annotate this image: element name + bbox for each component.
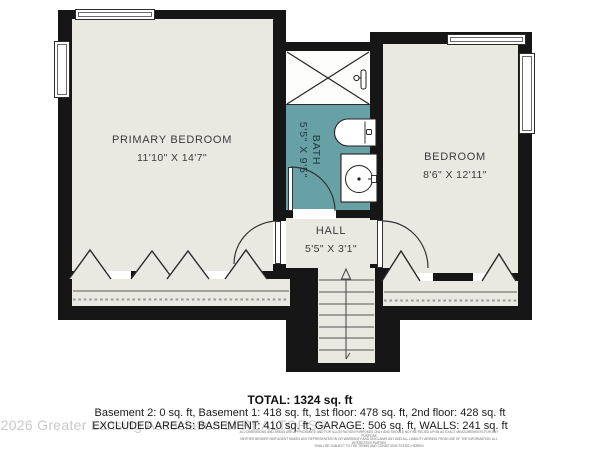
staircase: [318, 268, 375, 363]
knee-wall-segment: [72, 271, 79, 279]
bedroom-dimensions: 8'6" X 12'11": [423, 169, 487, 181]
eaves-strip-left: [72, 279, 290, 306]
knee-wall-segment: [510, 273, 518, 281]
primary-bedroom-dimensions: 11'10" X 14'7": [137, 152, 207, 164]
shower-stall: [286, 51, 370, 105]
floor-areas-text: Basement 2: 0 sq. ft, Basement 1: 418 sq…: [0, 407, 600, 420]
window-primary-left: [54, 41, 70, 98]
knee-wall-segment: [383, 273, 391, 281]
total-area-text: TOTAL: 1324 sq. ft: [0, 393, 600, 407]
bedroom-label: BEDROOM: [424, 151, 486, 163]
disclaimer-line: SHALL BE SUBJECT TO THE TERMS AND CONDIT…: [238, 445, 500, 449]
wall-bottom-left: [58, 306, 318, 320]
eaves-strip-right: [383, 281, 518, 306]
area-summary: TOTAL: 1324 sq. ft Basement 2: 0 sq. ft,…: [0, 393, 600, 432]
wall-divider-left-lower: [273, 263, 286, 280]
wall-divider-left: [273, 10, 286, 222]
knee-wall-segment: [433, 273, 473, 281]
wall-top-center: [286, 42, 383, 51]
window-pane: [522, 56, 532, 131]
disclaimer-fine-print: ALL DIMENSIONS AND AREAS ARE APPROXIMATE…: [238, 431, 500, 449]
window-bedroom-right: [519, 53, 535, 134]
wall-bottom-right: [400, 306, 532, 320]
door-leaf-bedroom: [377, 220, 383, 268]
floorplan-canvas: PRIMARY BEDROOM 11'10" X 14'7" BEDROOM 8…: [0, 0, 600, 450]
window-pane: [57, 44, 67, 95]
knee-wall-segment: [131, 271, 144, 279]
hall-dimensions: 5'5" X 3'1": [305, 243, 357, 255]
knee-wall-left: [72, 271, 273, 279]
primary-bedroom-label: PRIMARY BEDROOM: [112, 134, 232, 146]
window-pane: [450, 37, 523, 42]
door-leaf-bath: [288, 167, 293, 211]
doorway-bath: [293, 209, 336, 219]
wall-divider-right: [370, 32, 383, 220]
hall-label: HALL: [316, 225, 346, 237]
door-leaf-primary: [275, 221, 281, 264]
knee-wall-segment: [254, 271, 273, 279]
bath-label: BATH 5'5" X 9'5": [296, 122, 322, 178]
window-bedroom-top: [447, 34, 526, 45]
bath-label-dimensions: 5'5" X 9'5": [296, 122, 309, 178]
window-pane: [78, 12, 152, 17]
bath-label-name: BATH: [309, 122, 322, 178]
window-primary-top: [75, 9, 155, 20]
